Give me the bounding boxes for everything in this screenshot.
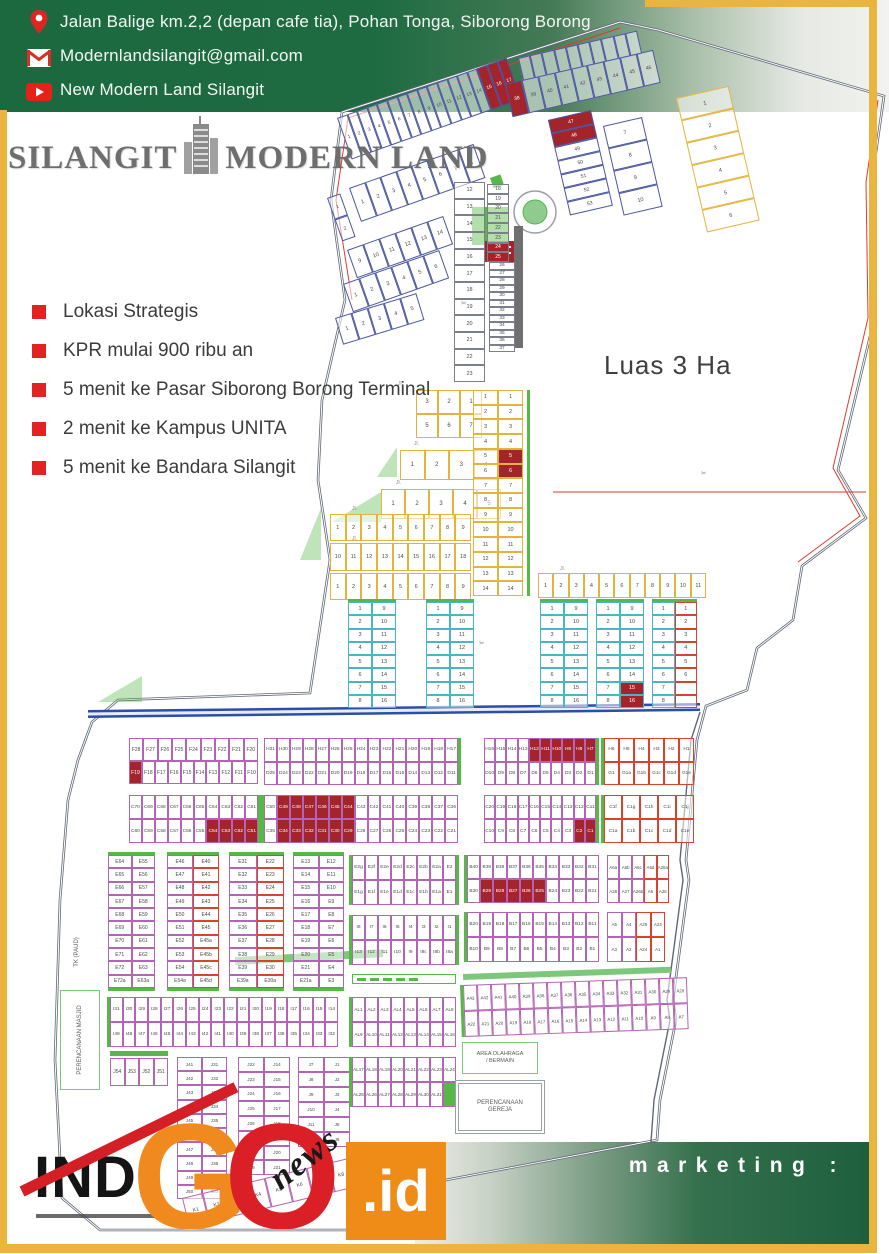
address-line: Jalan Balige km.2,2 (depan cafe tia), Po… (60, 10, 591, 34)
lot-cell: E27 (257, 921, 285, 934)
gmail-icon (26, 46, 52, 70)
brand-name-part2: MODERN LAND (225, 140, 488, 177)
lot-block-e2: E46E40E47E41E48E42E49E43E50E44E51E45E52E… (167, 855, 219, 988)
lot-cell: A16 (548, 1008, 563, 1034)
lot-block-iblk: I8I7I6I5I4I3I2I1I13I12I11I10I9I8cI8bI8a (352, 915, 456, 965)
map-labels-layer: Luas 3 Ha AREA OLAHRAGA / BERMAIN PERENC… (0, 0, 889, 1254)
lot-cell: C32 (303, 819, 316, 843)
lot-cell: E2d (391, 855, 404, 880)
lot-cell: A23 (651, 912, 666, 937)
lot-block-irow: I31I30I29I28I27I26I25I24I23I22I21I20I19I… (110, 997, 338, 1047)
lot-cell: 4 (426, 642, 450, 655)
lot-cell: J52 (139, 1058, 154, 1086)
lot-cell: I3 (417, 915, 430, 940)
lot-cell: 1 (330, 573, 346, 600)
brand-name-part1: SILANGIT (8, 140, 177, 177)
lot-cell: H13 (518, 738, 529, 762)
lot-cell: C33 (290, 819, 303, 843)
lot-cell: C39 (406, 795, 419, 819)
lot-cell: C1d (658, 819, 676, 843)
lot-cell: H8 (574, 738, 585, 762)
lot-cell: 4 (453, 489, 477, 519)
lot-cell: 12 (454, 182, 485, 199)
lot-cell: B33 (559, 855, 572, 879)
lot-cell: 3 (498, 419, 523, 434)
lot-cell: C13 (562, 795, 573, 819)
lot-block-mcol2: 1819202122232425 (487, 184, 509, 262)
lot-cell: H21 (393, 738, 406, 762)
lot-cell: 12 (620, 642, 644, 655)
lot-cell: E12 (319, 855, 345, 868)
lot-cell: I41 (211, 1022, 224, 1047)
lot-block-b1: B40B39B38B37B36B35B34B33B32B31B30B29B28B… (467, 855, 599, 903)
lot-cell: D4 (551, 762, 562, 786)
lot-cell: 33 (489, 315, 515, 323)
lot-cell: 7 (630, 573, 645, 598)
lot-cell: 2 (540, 615, 564, 628)
lot-cell: C60 (129, 819, 142, 843)
lot-cell: I31 (110, 997, 123, 1022)
lot-cell: E36 (229, 921, 257, 934)
lot-cell: A1 (651, 937, 666, 962)
lot-cell: AL3 (378, 997, 391, 1022)
green-sliver (235, 949, 383, 965)
selling-point-3: 5 menit ke Pasar Siborong Borong Termina… (32, 370, 430, 409)
lot-cell: 28 (489, 277, 515, 285)
lot-cell: B7 (507, 937, 520, 962)
lot-cell: C7 (518, 819, 529, 843)
lot-cell: E69 (108, 921, 132, 934)
lot-cell: 5 (407, 256, 433, 290)
lot-block-cy5: 11223344556678 (652, 602, 697, 708)
lot-cell: 3 (569, 573, 584, 598)
youtube-channel-line: New Modern Land Silangit (60, 78, 264, 102)
lot-cell: 2 (438, 390, 460, 414)
lot-cell: F14 (194, 761, 207, 784)
lot-cell: 4 (377, 514, 393, 541)
bullet-square-icon (32, 305, 46, 319)
lot-cell: B22 (573, 879, 586, 903)
lot-cell: I8b (430, 940, 443, 965)
lot-block-e4: E13E12E14E11E15E10E16E9E17E8E18E7E19E6E2… (293, 855, 344, 988)
lot-cell: A21 (478, 1010, 493, 1036)
lot-cell: 7 (473, 478, 498, 493)
lot-cell: J31 (202, 1057, 227, 1071)
lot-cell: 18 (454, 282, 485, 299)
lot-cell: 6 (702, 198, 760, 233)
lot-cell: 6 (408, 514, 424, 541)
green-edge (464, 912, 467, 962)
lot-cell: E43 (193, 895, 219, 908)
lot-cell: 7 (652, 682, 675, 695)
lot-cell: AL28 (391, 1082, 404, 1107)
green-edge (460, 985, 465, 1037)
lot-cell: A36 (561, 981, 576, 1007)
river-line (651, 712, 700, 1142)
lot-cell: E21a (293, 975, 319, 988)
lot-cell: D15 (393, 762, 406, 786)
lot-cell: C59 (142, 819, 155, 843)
lot-cell: 13 (473, 567, 498, 582)
lot-cell: E39a (229, 975, 257, 988)
lot-cell: I33 (313, 1022, 326, 1047)
lot-cell: AL21 (404, 1057, 417, 1082)
lot-cell: E1c (404, 880, 417, 905)
lot-cell: B23 (559, 879, 572, 903)
lot-cell: 4 (652, 642, 675, 655)
lot-cell: A3 (607, 937, 622, 962)
lot-cell: 26 (489, 262, 515, 270)
lot-cell: I16 (300, 997, 313, 1022)
lot-cell: I44 (173, 1022, 186, 1047)
lot-cell: H18 (432, 738, 445, 762)
sports-area-line2: / BERMAIN (486, 1058, 514, 1065)
lot-cell: C62 (232, 795, 245, 819)
lot-cell: C15 (540, 795, 551, 819)
lot-cell: 1 (473, 390, 498, 405)
lot-cell: 11 (620, 629, 644, 642)
lot-block-fblk: F28F27F26F25F24F23F22F21F20F19F18F17F16F… (129, 738, 258, 784)
lot-cell: E64 (108, 855, 132, 868)
lot-cell: F18 (142, 761, 155, 784)
lot-cell: 11 (450, 629, 474, 642)
lot-cell: E31 (229, 855, 257, 868)
lot-cell: E23 (257, 868, 285, 881)
lot-cell: 48 (551, 124, 597, 148)
lot-cell: A31 (631, 979, 646, 1005)
lot-cell: D5 (540, 762, 551, 786)
lot-cell: C1b (622, 819, 640, 843)
lot-cell: E9 (319, 895, 345, 908)
lot-block-col2637: 262728293031323334353637 (489, 262, 515, 352)
lot-cell: 8 (645, 573, 660, 598)
lot-cell: E16 (293, 895, 319, 908)
lot-cell: 8 (596, 695, 620, 708)
lot-cell: C25 (393, 819, 406, 843)
selling-point-text: 5 menit ke Pasar Siborong Borong Termina… (63, 379, 430, 401)
lot-cell: B17 (507, 912, 520, 937)
lot-cell: I17 (287, 997, 300, 1022)
lot-cell: I8a (443, 940, 456, 965)
lot-cell: C35 (264, 819, 277, 843)
lot-cell: 10 (620, 615, 644, 628)
green-edge (596, 599, 644, 602)
lot-cell: D2 (574, 762, 585, 786)
lot-cell: A28 (607, 879, 619, 903)
lot-cell: 7 (603, 117, 647, 148)
lot-cell: B27 (507, 879, 520, 903)
lot-cell: E37 (229, 935, 257, 948)
lot-cell: E1f (365, 880, 378, 905)
lot-cell: E30 (257, 961, 285, 974)
green-edge (108, 852, 155, 855)
lot-cell: F17 (155, 761, 168, 784)
lot-cell: 8 (440, 514, 456, 541)
lot-cell: H1 (679, 738, 694, 762)
map-decorations (0, 0, 889, 1254)
lot-cell: C51 (245, 819, 258, 843)
lot-cell: E8 (319, 908, 345, 921)
lot-cell: D1 (585, 762, 596, 786)
lot-cell: C2 (574, 819, 585, 843)
address-text: Jalan Balige km.2,2 (depan cafe tia), Po… (60, 12, 591, 32)
lot-cell: I8c (417, 940, 430, 965)
mosque-plan-label: PERENCANAAN MASJID (77, 1005, 83, 1074)
lot-cell: E25 (257, 895, 285, 908)
lot-cell: A38 (533, 982, 548, 1008)
lot-cell: A37 (547, 982, 562, 1008)
lot-cell: 18 (487, 184, 509, 194)
lot-block-cg: C1fC1gC1hC1iC1jC1aC1bC1cC1dC1e (604, 795, 694, 843)
green-edge (258, 795, 261, 843)
lot-cell: A29 (659, 978, 674, 1004)
lot-cell: H22 (380, 738, 393, 762)
lot-cell: C58 (155, 819, 168, 843)
lot-cell: C27 (368, 819, 381, 843)
kindergarten-label-area: TK (PAUD) (62, 912, 92, 992)
lot-cell: C65 (194, 795, 207, 819)
green-edge (540, 599, 588, 602)
lot-cell: E1d (391, 880, 404, 905)
lot-cell: 3 (540, 629, 564, 642)
lot-cell: C16 (529, 795, 540, 819)
lot-cell: B5 (533, 937, 546, 962)
lot-cell: C1j (676, 795, 694, 819)
lot-block-a2s: A5A4A25A23A3A2A24A1 (607, 912, 665, 962)
lot-cell: H14 (506, 738, 517, 762)
gold-frame-left (0, 110, 7, 1253)
lot-cell: E56 (132, 868, 156, 881)
lot-cell: 4 (692, 153, 750, 188)
lot-cell: 1 (426, 602, 450, 615)
lot-cell: 10 (450, 615, 474, 628)
green-edge (261, 795, 264, 843)
lot-cell: E1a (430, 880, 443, 905)
street-label: Jl. (352, 536, 357, 542)
flyer-page: Jalan Balige km.2,2 (depan cafe tia), Po… (0, 0, 889, 1254)
lot-cell: B26 (520, 879, 533, 903)
lot-cell: E45b (193, 948, 219, 961)
lot-cell: 6 (540, 668, 564, 681)
lot-cell: 2 (348, 615, 372, 628)
lot-cell: AL1 (352, 997, 365, 1022)
lot-cell: A11 (618, 1005, 633, 1031)
lot-cell: 6 (614, 573, 629, 598)
lot-cell: D9 (495, 762, 506, 786)
lot-cell: 14 (473, 581, 498, 596)
lot-cell: 32 (489, 307, 515, 315)
lot-cell: 2 (553, 573, 568, 598)
lot-cell: D8 (506, 762, 517, 786)
j54-strip (110, 1051, 168, 1056)
lot-cell: A42 (477, 984, 492, 1010)
lot-cell: H17 (445, 738, 458, 762)
lot-cell: I12 (365, 940, 378, 965)
lot-cell: 14 (454, 215, 485, 232)
lot-cell: 16 (454, 249, 485, 266)
lot-cell: H4 (634, 738, 649, 762)
lot-cell: J32 (202, 1071, 227, 1085)
lot-cell: D6 (529, 762, 540, 786)
lot-cell: C37 (432, 795, 445, 819)
lot-cell: E66 (108, 882, 132, 895)
lot-cell: B20 (467, 912, 480, 937)
lot-cell: D25 (264, 762, 277, 786)
lot-cell: I1 (443, 915, 456, 940)
legend-bar (352, 974, 456, 984)
lot-cell: B14 (546, 912, 559, 937)
lot-block-al1: AL1AL2AL3AL4AL5AL6AL7AL8AL9AL10AL11AL12A… (352, 997, 456, 1047)
lot-cell: AL12 (391, 1022, 404, 1047)
lot-cell: 3 (596, 629, 620, 642)
lot-cell: 6 (438, 414, 460, 438)
lot-cell: E60 (132, 921, 156, 934)
lot-cell: E24 (257, 882, 285, 895)
lot-cell: E61 (132, 935, 156, 948)
lot-cell: 17 (440, 543, 456, 571)
lot-cell: C6 (529, 819, 540, 843)
lot-cell: E63a (132, 975, 156, 988)
lot-cell: I37 (262, 1022, 275, 1047)
lot-cell: 4 (596, 642, 620, 655)
lot-cell: 2 (498, 405, 523, 420)
lot-cell: 10 (564, 615, 588, 628)
lot-cell: E70 (108, 935, 132, 948)
lot-cell: A26b (632, 879, 644, 903)
lot-cell: H2 (664, 738, 679, 762)
lot-cell: 8 (348, 695, 372, 708)
lot-cell: 22 (487, 223, 509, 233)
green-edge (464, 855, 467, 903)
lot-cell: AL5 (404, 997, 417, 1022)
green-edge (167, 852, 219, 855)
green-edge (596, 795, 599, 843)
lot-block-cy4: 19210311412513614715816 (596, 602, 644, 708)
lot-cell: 52 (564, 178, 610, 202)
lot-cell: D10 (484, 762, 495, 786)
green-edge (107, 997, 110, 1047)
lot-cell: AL30 (417, 1082, 430, 1107)
lot-cell: A6b (619, 855, 631, 879)
lot-cell: H16 (484, 738, 495, 762)
lot-block-adiag: A43A42A41A40A39A38A37A36A35A34A33A32A31A… (463, 977, 689, 1037)
lot-cell: B8 (493, 937, 506, 962)
lot-cell: 8 (608, 139, 652, 170)
lot-cell: H6 (604, 738, 619, 762)
lot-cell: H27 (316, 738, 329, 762)
lot-cell: I40 (224, 1022, 237, 1047)
street-label: Jl. (560, 566, 565, 572)
lot-cell: B6 (520, 937, 533, 962)
lot-cell: AL25 (352, 1082, 365, 1107)
lot-cell: C1a (604, 819, 622, 843)
lot-cell: A35 (575, 981, 590, 1007)
lot-cell: G1c (649, 762, 664, 786)
lot-cell: C41 (380, 795, 393, 819)
lot-cell: A34 (589, 980, 604, 1006)
lot-cell: 11 (379, 233, 405, 267)
gold-frame-bottom (0, 1244, 877, 1253)
lot-cell: 1 (327, 193, 348, 219)
lot-cell: C40 (393, 795, 406, 819)
lot-cell: B30 (467, 879, 480, 903)
lot-cell: C54 (206, 819, 219, 843)
lot-cell: A28 (673, 977, 688, 1003)
lot-cell: 7 (424, 573, 440, 600)
lot-cell: H30 (277, 738, 290, 762)
lot-cell: J53 (125, 1058, 140, 1086)
lot-cell: 1 (596, 602, 620, 615)
lot-cell: 15 (564, 682, 588, 695)
lot-cell: AL27 (378, 1082, 391, 1107)
sports-area-line1: AREA OLAHRAGA (477, 1051, 524, 1058)
lot-cell: 13 (498, 567, 523, 582)
lot-cell: 8 (473, 493, 498, 508)
watermark-id-box: .id (346, 1142, 446, 1240)
lot-cell: 15 (454, 232, 485, 249)
lot-cell: 4 (473, 434, 498, 449)
lot-cell: AL18 (365, 1057, 378, 1082)
lot-cell: B31 (586, 855, 599, 879)
lot-cell: I46 (148, 1022, 161, 1047)
lot-cell: 5 (498, 449, 523, 464)
lot-cell: E57 (132, 882, 156, 895)
lot-cell: E48 (167, 882, 193, 895)
lot-cell: C53 (219, 819, 232, 843)
lot-cell: F25 (172, 738, 186, 761)
lot-block-hg: H6H5H4H3H2H1G1G1aG1bG1cG1dG1e (604, 738, 694, 785)
lot-block-cblk1: C70C69C68C67C66C65C64C63C62C61C60C59C58C… (129, 795, 258, 843)
lot-cell: I25 (186, 997, 199, 1022)
lot-cell: 50 (557, 151, 603, 175)
lot-block-m3: 12345 (381, 489, 501, 519)
lot-cell: 36 (489, 337, 515, 345)
lot-cell: 6 (652, 668, 675, 681)
green-sq (490, 174, 504, 188)
lot-cell: H3 (649, 738, 664, 762)
lot-cell: A2 (622, 937, 637, 962)
lot-cell: J22 (238, 1057, 264, 1072)
lot-cell: F15 (181, 761, 194, 784)
lot-cell: 23 (487, 233, 509, 243)
lot-cell: A17 (534, 1008, 549, 1034)
lot-cell: AL2 (365, 997, 378, 1022)
lot-cell: 9 (564, 602, 588, 615)
site-boundary-line (55, 22, 884, 1230)
selling-point-text: 2 menit ke Kampus UNITA (63, 418, 287, 440)
lot-cell: 49 (554, 137, 600, 161)
lot-cell: 10 (363, 239, 389, 273)
lot-cell: C3 (562, 819, 573, 843)
lot-cell: G1 (604, 762, 619, 786)
lot-cell: 27 (489, 270, 515, 278)
lot-cell: AL10 (365, 1022, 378, 1047)
green-edge (167, 988, 219, 991)
lot-cell: 14 (450, 668, 474, 681)
lot-cell: 8 (498, 493, 523, 508)
watermark-id-text: .id (362, 1158, 430, 1225)
lot-cell: A6a (607, 855, 619, 879)
lot-cell: E30a (257, 975, 285, 988)
lot-cell: 16 (450, 695, 474, 708)
lot-cell: E1g (352, 880, 365, 905)
lot-cell: AL13 (404, 1022, 417, 1047)
lot-block-e5: E2gE2fE2eE2dE2cE2bE2aE2E1gE1fE1eE1dE1cE1… (352, 855, 456, 905)
lot-cell: F20 (244, 738, 258, 761)
green-edge (456, 915, 459, 965)
green-edge (458, 738, 461, 785)
lot-cell: I28 (148, 997, 161, 1022)
